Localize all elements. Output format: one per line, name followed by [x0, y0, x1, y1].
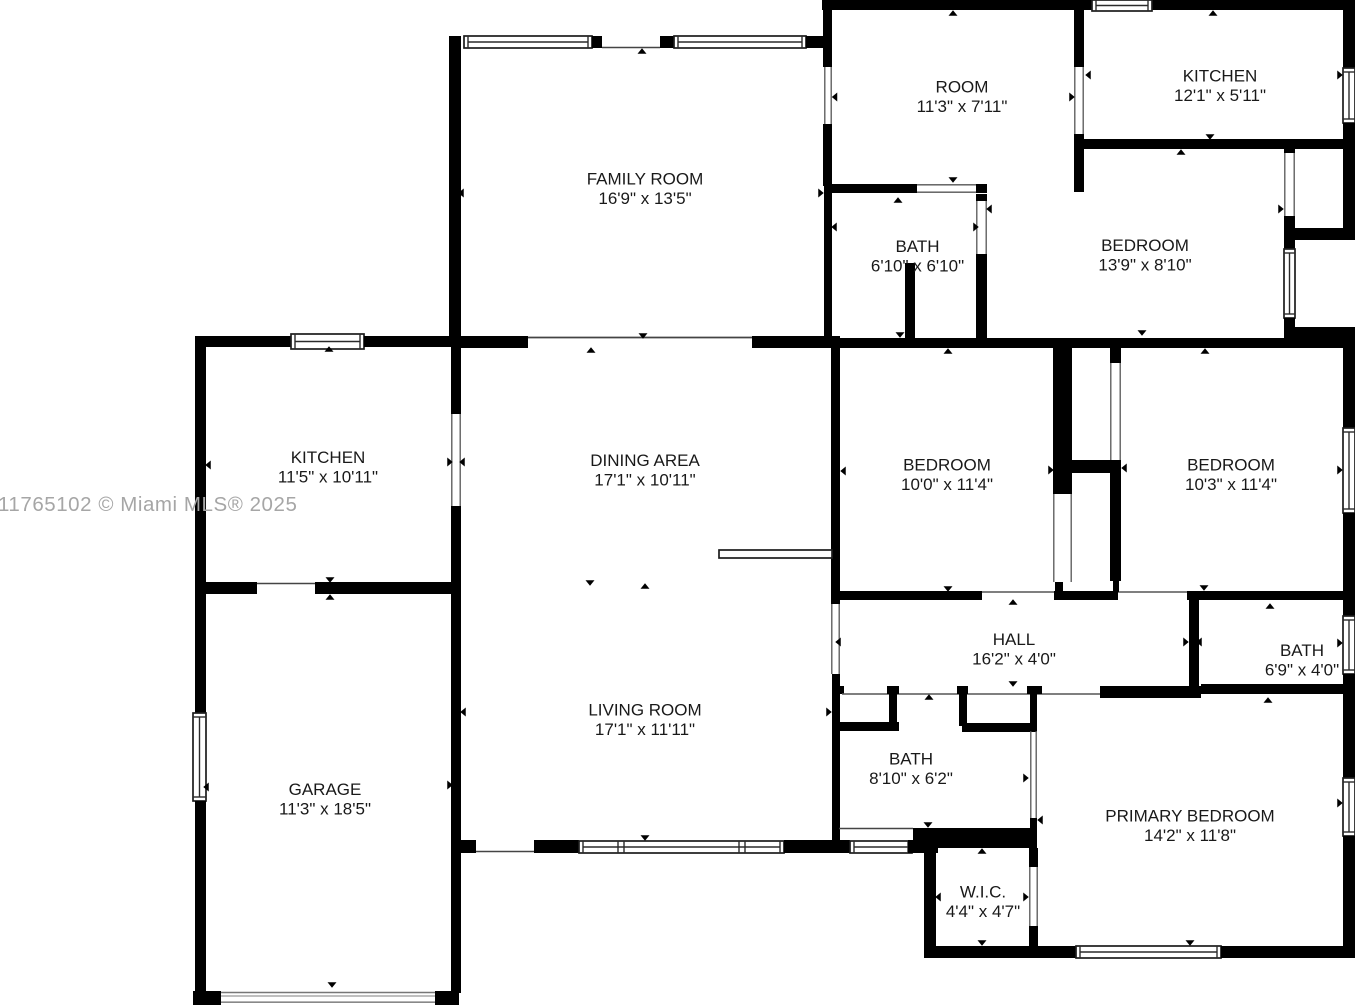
svg-text:10'3" x 11'4": 10'3" x 11'4"	[1185, 475, 1277, 494]
svg-text:HALL: HALL	[993, 630, 1036, 649]
svg-text:FAMILY ROOM: FAMILY ROOM	[587, 170, 704, 189]
svg-text:BATH: BATH	[895, 237, 939, 256]
svg-text:6'9" x 4'0": 6'9" x 4'0"	[1265, 661, 1339, 680]
svg-text:16'2" x 4'0": 16'2" x 4'0"	[972, 650, 1056, 669]
svg-text:17'1" x 10'11": 17'1" x 10'11"	[594, 471, 695, 490]
svg-text:KITCHEN: KITCHEN	[291, 448, 366, 467]
svg-text:GARAGE: GARAGE	[289, 780, 362, 799]
svg-text:10'0" x 11'4": 10'0" x 11'4"	[901, 475, 993, 494]
svg-text:11765102 © Miami MLS® 2025: 11765102 © Miami MLS® 2025	[0, 493, 297, 516]
svg-text:16'9" x 13'5": 16'9" x 13'5"	[598, 189, 691, 208]
svg-text:DINING AREA: DINING AREA	[590, 451, 700, 470]
svg-text:BEDROOM: BEDROOM	[903, 456, 991, 475]
svg-text:LIVING ROOM: LIVING ROOM	[588, 701, 701, 720]
svg-text:BATH: BATH	[889, 750, 933, 769]
svg-text:13'9" x 8'10": 13'9" x 8'10"	[1098, 256, 1191, 275]
svg-text:BEDROOM: BEDROOM	[1187, 456, 1275, 475]
svg-text:11'5" x 10'11": 11'5" x 10'11"	[278, 468, 378, 487]
svg-text:BEDROOM: BEDROOM	[1101, 236, 1189, 255]
svg-text:12'1" x 5'11": 12'1" x 5'11"	[1174, 86, 1266, 105]
svg-text:ROOM: ROOM	[936, 78, 989, 97]
svg-text:6'10" x 6'10": 6'10" x 6'10"	[871, 257, 964, 276]
svg-text:KITCHEN: KITCHEN	[1183, 67, 1258, 86]
svg-text:PRIMARY BEDROOM: PRIMARY BEDROOM	[1105, 807, 1274, 826]
svg-text:W.I.C.: W.I.C.	[960, 883, 1006, 902]
svg-text:11'3" x 7'11": 11'3" x 7'11"	[917, 97, 1008, 116]
svg-text:11'3" x 18'5": 11'3" x 18'5"	[279, 800, 371, 819]
svg-text:8'10" x 6'2": 8'10" x 6'2"	[869, 769, 953, 788]
svg-text:BATH: BATH	[1280, 641, 1324, 660]
svg-text:17'1" x 11'11": 17'1" x 11'11"	[595, 720, 695, 739]
svg-text:14'2" x 11'8": 14'2" x 11'8"	[1144, 826, 1236, 845]
svg-text:4'4" x 4'7": 4'4" x 4'7"	[946, 902, 1020, 921]
